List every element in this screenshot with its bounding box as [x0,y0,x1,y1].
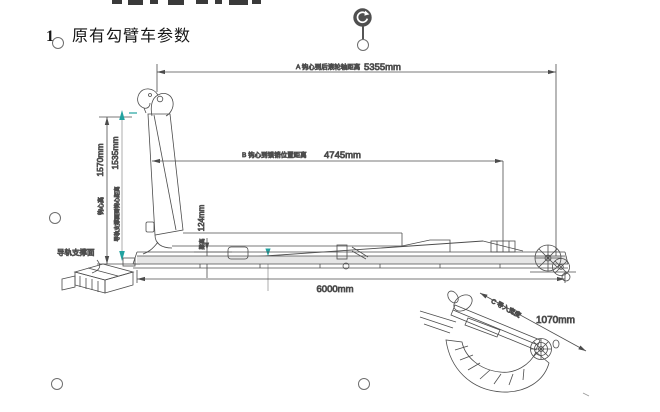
selection-handle-middle-left[interactable] [49,212,61,224]
dim-beam-label: 梁高 [198,238,206,250]
rail-surface-marker [265,249,270,292]
dim-rail-to-hook-label: 导轨支撑面到钩心距离 [113,186,121,242]
dim-b-label: B 钩心到锁销位置距离 [242,150,307,159]
hook-arm [138,89,523,261]
rail-support-sketch [62,260,133,293]
dim-rail-to-hook-value: 1535mm [110,136,120,169]
dim-length [137,270,565,283]
document-page: 1、原有勾臂车参数 A 钩心到后滚轮轴距离 5355mm B 钩心到锁销位置距离 [0,0,660,412]
rotate-icon [353,8,372,27]
selection-handle-top-center[interactable] [357,39,369,51]
technical-drawing: A 钩心到后滚轮轴距离 5355mm B 钩心到锁销位置距离 4745mm 15… [0,0,660,412]
dim-length-value: 6000mm [317,284,354,295]
rail-surface-label: 导轨支撑面 [57,247,95,257]
rotate-stem [362,26,364,39]
rotate-handle[interactable] [353,8,372,27]
dim-hook-height-value: 1570mm [95,143,105,176]
dim-rail-to-hook [119,110,137,261]
dim-hook-height-label: 钩心高 [97,197,105,215]
dim-b-value: 4745mm [324,150,361,161]
dim-a-label: A 钩心到后滚轮轴距离 [296,62,361,71]
selected-figure[interactable]: A 钩心到后滚轮轴距离 5355mm B 钩心到锁销位置距离 4745mm 15… [0,0,660,412]
selection-handle-top-left[interactable] [52,37,64,49]
selection-handle-bottom-left[interactable] [51,378,63,390]
dim-inlet-value: 1070mm [536,315,575,326]
dim-inlet-label: C 导入宽度 [490,296,523,319]
dim-beam-value: 124mm [197,204,206,231]
selection-handle-bottom-center[interactable] [358,378,370,390]
dim-a-value: 5355mm [364,62,401,73]
